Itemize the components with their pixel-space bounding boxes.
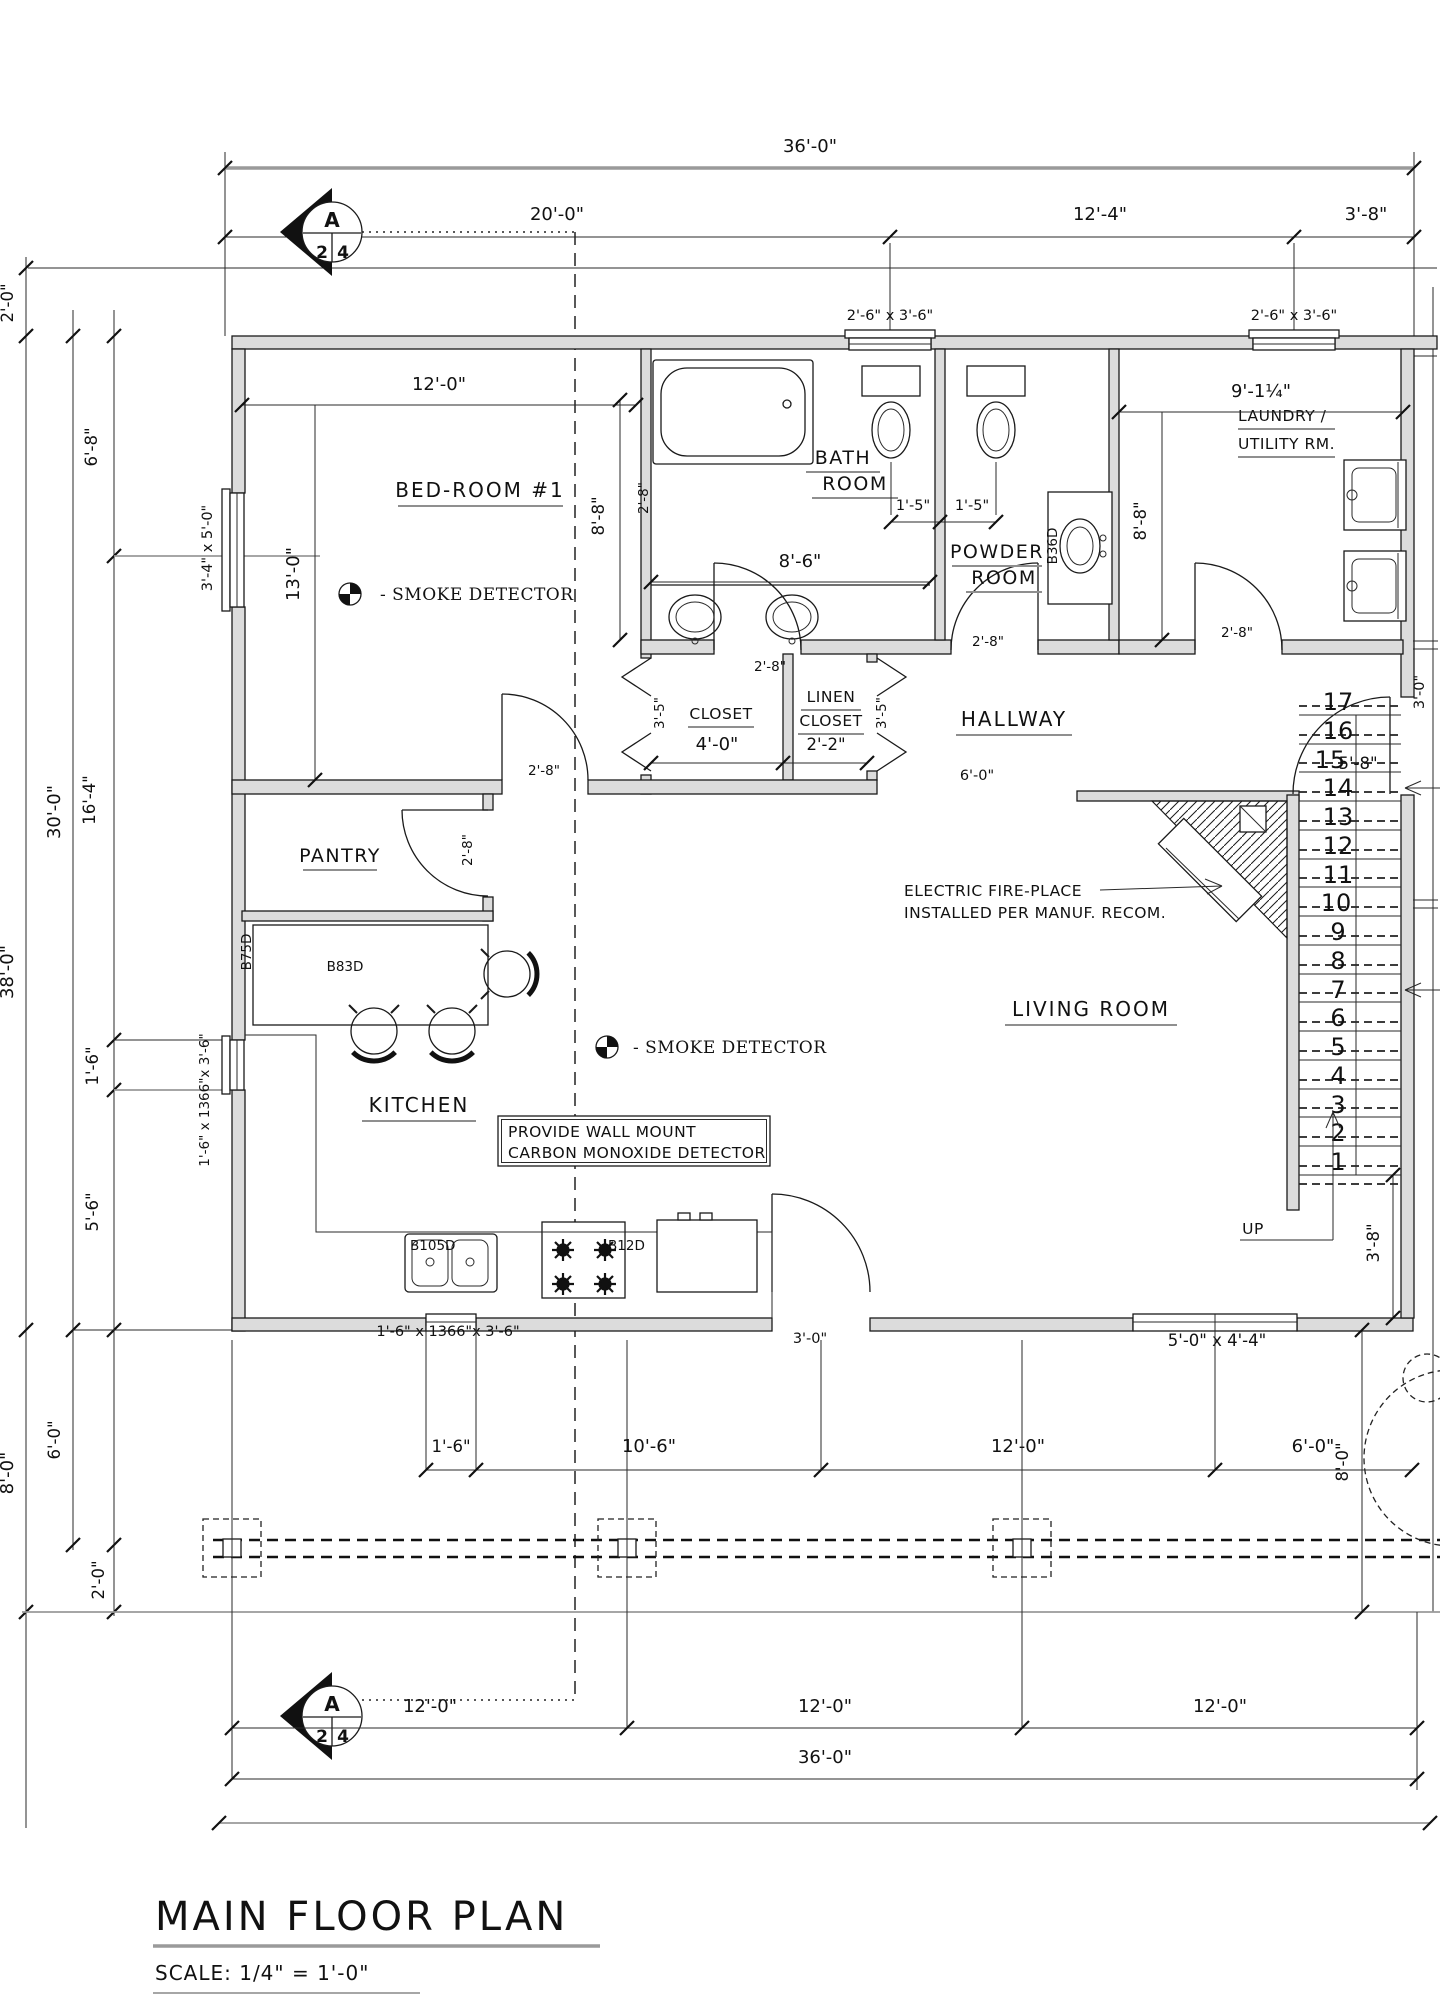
dim-6-8: 6'-8": [82, 427, 101, 466]
dim-8-6: 8'-6": [779, 551, 822, 572]
co-detector-note: PROVIDE WALL MOUNT CARBON MONOXIDE DETEC…: [498, 1116, 770, 1166]
porch-foundation: 1'-6" 10'-6" 12'-0" 6'-0" 8'-0": [22, 1323, 1440, 1790]
label-kitchen: KITCHEN: [369, 1093, 470, 1117]
stair-10: 10: [1321, 889, 1352, 917]
dim-1-5-b: 1'-5": [955, 498, 989, 514]
window-label-kitchen-sink: 1'-6" x 1366"x 3'-6": [376, 1324, 519, 1340]
dim-5-8: 5'-8": [1338, 754, 1377, 773]
label-powder-1: POWDER: [950, 541, 1044, 563]
dim-2-8-powder-door: 2'-8": [972, 634, 1004, 650]
section-num-right-2: 4: [337, 1727, 349, 1747]
dim-9-1: 9'-1¼": [1231, 381, 1291, 402]
fireplace: ELECTRIC FIRE-PLACE INSTALLED PER MANUF.…: [904, 801, 1287, 938]
floor-plan-page: 36'-0" 20'-0" 12'-4" 3'-8" 2'-6" x 3'-6"…: [0, 0, 1440, 2016]
label-hallway: HALLWAY: [961, 707, 1067, 731]
fireplace-note-line1: ELECTRIC FIRE-PLACE: [904, 882, 1082, 900]
dim-3-5-a: 3'-5": [652, 697, 668, 729]
stair-17: 17: [1323, 688, 1354, 716]
dim-8-8-laundry: 8'-8": [1131, 501, 1150, 540]
label-linen-2: CLOSET: [799, 712, 862, 730]
dim-8-0-porch: 8'-0": [1333, 1442, 1352, 1481]
co-note-line1: PROVIDE WALL MOUNT: [508, 1123, 696, 1141]
label-bath-2: ROOM: [822, 473, 888, 495]
label-b75d: B75D: [239, 934, 255, 971]
dim-38-0: 38'-0": [0, 945, 18, 999]
fireplace-note-line2: INSTALLED PER MANUF. RECOM.: [904, 904, 1166, 922]
dim-6-0-hallway: 6'-0": [960, 768, 994, 784]
floor-plan-drawing: 36'-0" 20'-0" 12'-4" 3'-8" 2'-6" x 3'-6"…: [0, 0, 1440, 2016]
dim-2-8-bedroom-door: 2'-8": [528, 763, 560, 779]
dim-12-0-bottom-3: 12'-0": [1193, 1696, 1247, 1717]
label-laundry-1: LAUNDRY /: [1238, 407, 1327, 425]
dim-2-2: 2'-2": [806, 735, 845, 754]
dim-3-0-entry-door: 3'-0": [793, 1331, 827, 1347]
dim-8-8-bath: 8'-8": [589, 496, 608, 535]
window-label-living: 5'-0" x 4'-4": [1168, 1331, 1266, 1350]
dim-16-4: 16'-4": [80, 775, 99, 825]
label-b83d: B83D: [327, 959, 364, 975]
drawing-title: MAIN FLOOR PLAN: [155, 1894, 568, 1940]
window-label-kitchen-left: 1'-6" x 1366"x 3'-6": [197, 1033, 213, 1166]
dim-6-0-porch: 6'-0": [1292, 1436, 1335, 1457]
co-note-line2: CARBON MONOXIDE DETECTOR: [508, 1144, 766, 1162]
label-linen-1: LINEN: [807, 688, 856, 706]
dim-12-0-porch: 12'-0": [991, 1436, 1045, 1457]
smoke-detector-2: - SMOKE DETECTOR: [596, 1036, 827, 1058]
title-block: MAIN FLOOR PLAN SCALE: 1/4" = 1'-0": [153, 1894, 600, 1993]
dim-3-8-stair: 3'-8": [1364, 1223, 1383, 1262]
label-laundry-2: UTILITY RM.: [1238, 435, 1335, 453]
label-closet: CLOSET: [689, 705, 752, 723]
section-marker-top: A 2 4: [280, 188, 362, 276]
dim-3-8-top: 3'-8": [1345, 204, 1388, 225]
section-letter-2: A: [324, 1692, 340, 1716]
dim-10-6: 10'-6": [622, 1436, 676, 1457]
dim-20-0: 20'-0": [530, 204, 584, 225]
dim-1-6-porch: 1'-6": [431, 1437, 470, 1456]
dim-12-0-bottom-1: 12'-0": [403, 1696, 457, 1717]
section-marker-bottom: A 2 4: [280, 1672, 362, 1760]
dim-36-bottom: 36'-0": [798, 1747, 852, 1768]
label-pantry: PANTRY: [299, 845, 381, 867]
dim-2-8-bath-entry: 2'-8": [636, 482, 652, 514]
dim-2-8-bath-door: 2'-8": [754, 659, 786, 675]
dim-30-0: 30'-0": [44, 785, 65, 839]
label-b12d: B12D: [608, 1238, 645, 1254]
dim-6-0-left: 6'-0": [45, 1420, 64, 1459]
stair-8: 8: [1330, 947, 1345, 975]
stair-14: 14: [1323, 774, 1354, 802]
dim-3-5-b: 3'-5": [874, 697, 890, 729]
dim-2-0-bottom: 2'-0": [89, 1560, 108, 1599]
stair-12: 12: [1323, 832, 1354, 860]
label-bedroom: BED-ROOM #1: [395, 478, 564, 502]
smoke-note-1: - SMOKE DETECTOR: [380, 585, 574, 605]
section-num-left: 2: [316, 243, 328, 263]
dim-12-0-bottom-2: 12'-0": [798, 1696, 852, 1717]
label-b36d: B36D: [1045, 528, 1061, 565]
smoke-detector-1: - SMOKE DETECTOR: [339, 583, 574, 605]
label-living-room: LIVING ROOM: [1012, 997, 1170, 1021]
window-label-bedroom: 3'-4" x 5'-0": [200, 505, 216, 591]
window-label-powder: 2'-6" x 3'-6": [847, 308, 933, 324]
smoke-note-2: - SMOKE DETECTOR: [633, 1038, 827, 1058]
stair-16: 16: [1323, 717, 1354, 745]
dim-4-0: 4'-0": [696, 734, 739, 755]
label-b105d: B105D: [410, 1238, 455, 1254]
drawing-scale: SCALE: 1/4" = 1'-0": [155, 1961, 369, 1985]
dim-3-0-stairdoor: 3'-0": [1412, 675, 1428, 709]
stair-9: 9: [1330, 918, 1345, 946]
dim-13-0: 13'-0": [283, 547, 304, 601]
bottom-dimensions: 12'-0" 12'-0" 12'-0" 36'-0": [212, 1696, 1437, 1830]
dim-12-0-bedroom: 12'-0": [412, 374, 466, 395]
section-num-right: 4: [337, 243, 349, 263]
stair-7: 7: [1330, 976, 1345, 1004]
dim-36-top: 36'-0": [783, 136, 837, 157]
bath-fixtures: [651, 360, 1112, 644]
dim-2-8-laundry-door: 2'-8": [1221, 625, 1253, 641]
dim-1-5-a: 1'-5": [896, 498, 930, 514]
stair-4: 4: [1330, 1062, 1345, 1090]
stair-5: 5: [1330, 1033, 1345, 1061]
stair-6: 6: [1330, 1004, 1345, 1032]
dim-2-0-top: 2'-0": [0, 283, 17, 322]
dim-1-6-left: 1'-6": [83, 1046, 102, 1085]
label-powder-2: ROOM: [971, 567, 1037, 589]
dim-2-8-pantry-door: 2'-8": [460, 834, 476, 866]
stair-13: 13: [1323, 803, 1354, 831]
dim-5-6: 5'-6": [83, 1192, 102, 1231]
label-bath-1: BATH: [815, 447, 871, 469]
left-dimensions: 2'-0" 38'-0" 8'-0" 30'-0" 6'-0" 6'-8" 16…: [0, 257, 320, 1828]
section-num-left-2: 2: [316, 1727, 328, 1747]
laundry-appliances: [1344, 460, 1406, 621]
window-label-laundry: 2'-6" x 3'-6": [1251, 308, 1337, 324]
stair-11: 11: [1323, 861, 1354, 889]
section-letter: A: [324, 208, 340, 232]
dim-12-4: 12'-4": [1073, 204, 1127, 225]
up-label: UP: [1242, 1220, 1264, 1238]
dim-8-0-left: 8'-0": [0, 1452, 18, 1495]
